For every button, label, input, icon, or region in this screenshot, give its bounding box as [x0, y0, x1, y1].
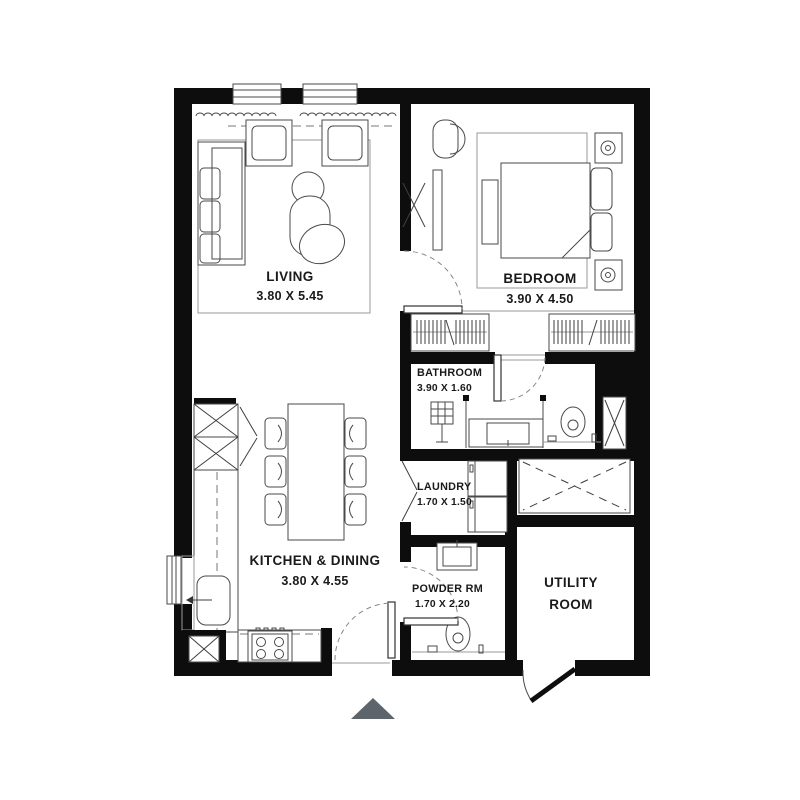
kitchen-dining: KITCHEN & DINING 3.80 X 4.55 — [182, 404, 380, 668]
bedroom-chair — [433, 120, 465, 158]
curtain — [196, 113, 396, 116]
room-label-powder: POWDER RM — [412, 583, 483, 595]
room-label-utility-line2: ROOM — [549, 597, 593, 612]
bedroom: BEDROOM 3.90 X 4.50 — [403, 120, 634, 313]
pillow — [591, 168, 612, 210]
dining-set — [265, 404, 366, 540]
floor-plan-page: LIVING 3.80 X 5.45 — [0, 0, 800, 800]
room-label-utility-line1: UTILITY — [544, 575, 598, 590]
living-room: LIVING 3.80 X 5.45 — [196, 113, 396, 313]
closet-threshold — [495, 355, 545, 360]
nightstand — [595, 260, 622, 290]
wardrobe-right — [549, 314, 635, 351]
ac-ledge — [519, 459, 630, 513]
dining-table — [288, 404, 344, 540]
kitchen-sink — [186, 576, 230, 625]
bed — [482, 163, 612, 258]
dining-chair — [265, 494, 286, 525]
room-dim-bedroom: 3.90 X 4.50 — [506, 292, 573, 306]
floor-plan: LIVING 3.80 X 5.45 — [0, 0, 800, 800]
bathroom-door-swing — [494, 355, 545, 401]
room-dim-powder: 1.70 X 2.20 — [415, 599, 470, 610]
window-top-right — [303, 84, 357, 104]
room-dim-living: 3.80 X 5.45 — [256, 289, 323, 303]
bathroom: BATHROOM 3.90 X 1.60 — [417, 355, 601, 448]
toilet — [543, 407, 601, 442]
utility-room: UTILITY ROOM — [523, 575, 598, 701]
dining-chair — [265, 418, 286, 449]
wardrobe-left — [411, 314, 489, 351]
laundry-bifold-door — [402, 461, 417, 521]
entry — [332, 602, 395, 719]
room-label-living: LIVING — [266, 269, 313, 284]
dining-chair — [345, 456, 366, 487]
powder-sink — [437, 540, 477, 570]
washer-dryer — [468, 461, 507, 532]
powder-room: POWDER RM 1.70 X 2.20 — [404, 540, 505, 653]
room-label-bedroom: BEDROOM — [503, 271, 576, 286]
pillow — [591, 213, 612, 251]
nightstand — [595, 133, 622, 163]
armchair — [322, 120, 368, 166]
room-label-bathroom: BATHROOM — [417, 367, 482, 379]
dining-chair — [345, 418, 366, 449]
utility-door-swing — [523, 669, 575, 701]
dining-chair — [345, 494, 366, 525]
sofa — [198, 142, 245, 265]
powder-door-swing — [404, 567, 458, 625]
tall-cabinet-fridge — [194, 404, 257, 470]
shaft — [603, 397, 626, 449]
room-dim-bathroom: 3.90 X 1.60 — [417, 383, 472, 394]
bedroom-door-swing — [404, 251, 462, 313]
laundry: LAUNDRY 1.70 X 1.50 — [402, 461, 507, 532]
window-top-left — [233, 84, 281, 104]
shower — [431, 402, 453, 442]
entrance-arrow-icon — [351, 698, 395, 719]
stove — [248, 628, 292, 662]
room-label-laundry: LAUNDRY — [417, 481, 472, 493]
entry-door-swing — [335, 602, 395, 660]
room-dim-kitchen: 3.80 X 4.55 — [281, 574, 348, 588]
room-label-kitchen: KITCHEN & DINING — [250, 553, 381, 568]
room-dim-laundry: 1.70 X 1.50 — [417, 497, 472, 508]
dining-chair — [265, 456, 286, 487]
armchair — [246, 120, 292, 166]
vanity-sink — [469, 419, 543, 447]
window-left-kitchen — [167, 556, 181, 604]
dishwasher-box — [182, 630, 226, 668]
